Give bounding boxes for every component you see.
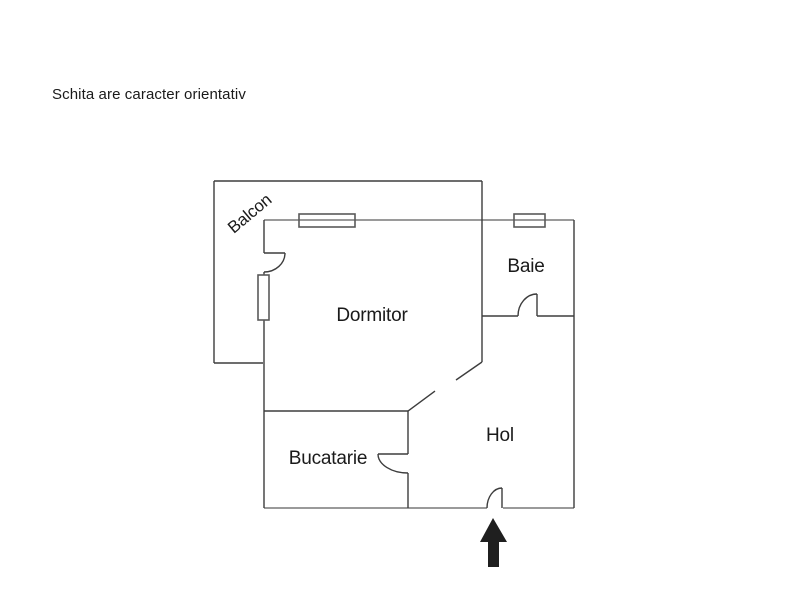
room-label-hol: Hol (486, 425, 514, 447)
disclaimer-title: Schita are caracter orientativ (52, 86, 246, 103)
room-label-baie: Baie (507, 256, 544, 278)
room-label-bucatarie: Bucatarie (289, 448, 367, 470)
floor-plan-page: Schita are caracter orientativ Balcon Do… (0, 0, 800, 600)
balcony-window-icon (258, 275, 269, 320)
entrance-arrow-icon (480, 518, 507, 567)
baie-door-icon (518, 294, 537, 316)
entrance-door-icon (487, 488, 502, 508)
diagonal-wall (408, 362, 482, 411)
room-label-dormitor: Dormitor (336, 305, 407, 327)
bucatarie-door-icon (378, 454, 408, 473)
walls (214, 181, 574, 508)
balcony-door-icon (264, 253, 285, 272)
